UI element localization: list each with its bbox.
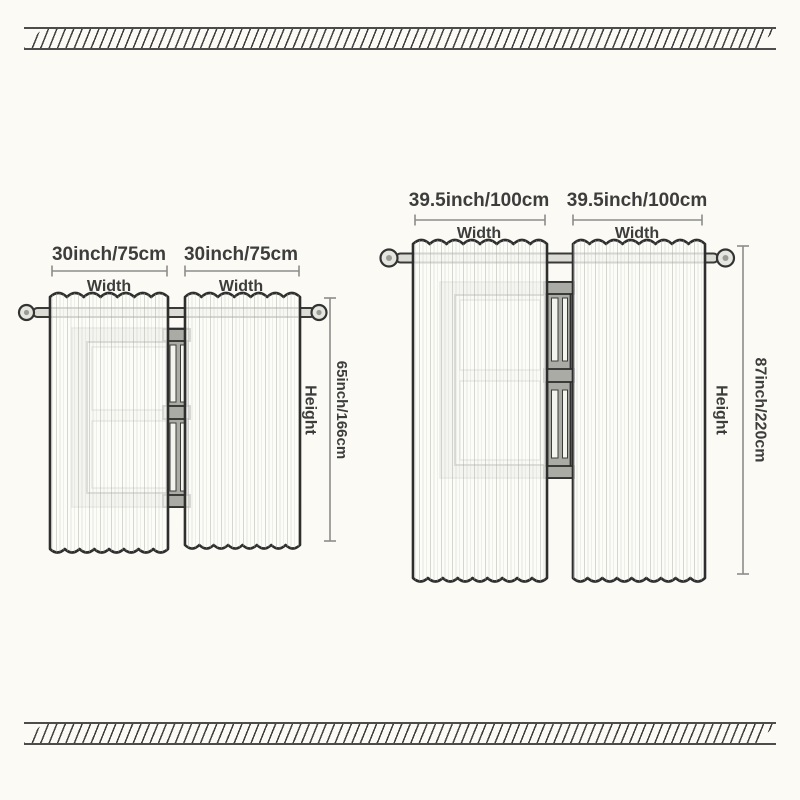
width-dimension-line-right [185,266,299,277]
curtain-panel-right [185,293,300,549]
large-curtain-set: 39.5inch/100cm 39.5inch/100cm Width Widt… [381,190,769,582]
width-caption: Width [219,278,263,295]
rod-finial-core [386,255,392,261]
mullion-slot [563,298,568,361]
curtain-texture [185,293,300,549]
width-value-label: 30inch/75cm [184,244,298,265]
height-value-label: 65inch/166cm [333,361,350,459]
width-dimension-line-left [52,266,167,277]
height-value-label: 87inch/220cm [751,358,768,463]
rod-finial-core [723,255,729,261]
diagram-canvas: 30inch/75cm 30inch/75cm Width Width 65in… [0,0,800,800]
curtain-texture [573,240,705,582]
width-value-label: 39.5inch/100cm [409,190,549,211]
window-mullion [544,282,574,478]
small-curtain-set: 30inch/75cm 30inch/75cm Width Width 65in… [19,244,350,553]
width-dimension-line-right [573,215,702,226]
curtain-size-diagram: 30inch/75cm 30inch/75cm Width Width 65in… [0,0,800,800]
mullion-slot [563,390,568,458]
mullion-slot [170,345,176,402]
rod-finial-core [24,310,29,315]
curtain-panel-left [413,240,547,582]
height-dimension-line [737,246,749,574]
mullion-cap [544,282,574,294]
curtain-panel-left [50,293,168,553]
width-caption: Width [457,225,501,242]
mullion-slot [552,298,559,361]
width-caption: Width [87,278,131,295]
width-caption: Width [615,225,659,242]
mullion-cross [544,369,574,382]
mullion-slot [170,423,176,491]
rod-finial-core [316,310,321,315]
height-caption: Height [712,385,729,435]
curtain-panel-right [573,240,705,582]
width-dimension-line-left [415,215,545,226]
mullion-slot [552,390,559,458]
curtain-texture [50,293,168,553]
width-value-label: 39.5inch/100cm [567,190,707,211]
mullion-cap [544,466,574,478]
height-caption: Height [301,385,318,435]
width-value-label: 30inch/75cm [52,244,166,265]
curtain-texture [413,240,547,582]
